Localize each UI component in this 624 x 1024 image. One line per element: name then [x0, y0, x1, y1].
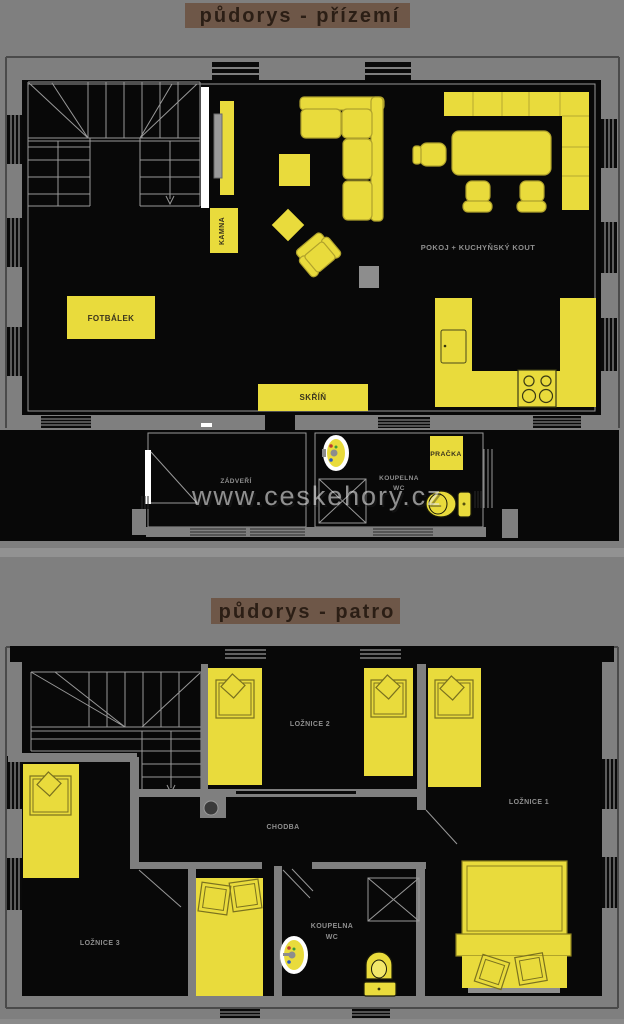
- svg-text:WC: WC: [326, 934, 338, 941]
- svg-text:KOUPELNA: KOUPELNA: [311, 923, 353, 930]
- svg-text:CHODBA: CHODBA: [266, 824, 299, 831]
- svg-text:www.ceskehory.cz: www.ceskehory.cz: [191, 481, 442, 511]
- svg-text:LOŽNICE 3: LOŽNICE 3: [80, 938, 120, 947]
- svg-text:půdorys - patro: půdorys - patro: [219, 601, 396, 623]
- svg-text:FOTBÁLEK: FOTBÁLEK: [88, 314, 135, 323]
- svg-text:SKŘÍŇ: SKŘÍŇ: [300, 393, 327, 402]
- svg-text:LOŽNICE 2: LOŽNICE 2: [290, 719, 330, 728]
- svg-text:půdorys - přízemí: půdorys - přízemí: [200, 5, 401, 27]
- svg-text:KAMNA: KAMNA: [219, 217, 226, 245]
- svg-text:POKOJ + KUCHYŇSKÝ KOUT: POKOJ + KUCHYŇSKÝ KOUT: [421, 243, 535, 252]
- svg-text:PRAČKA: PRAČKA: [430, 449, 461, 458]
- svg-text:LOŽNICE 1: LOŽNICE 1: [509, 797, 549, 806]
